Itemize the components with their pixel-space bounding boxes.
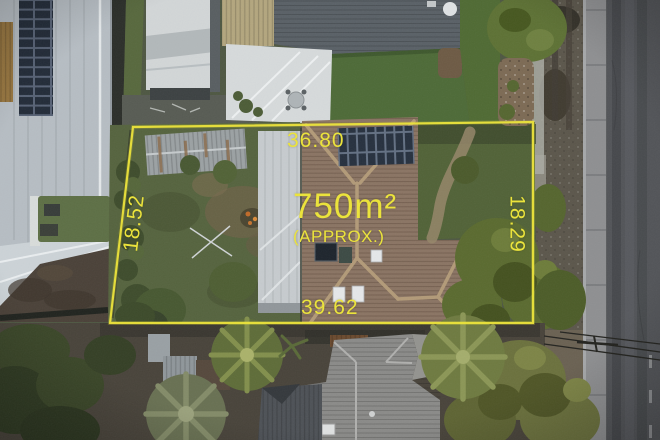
property-aerial-photo: 36.80 18.52 18.29 39.62 750m² (APPROX.) [0, 0, 660, 440]
boundary-length-top: 36.80 [287, 130, 345, 151]
land-area-qualifier: (APPROX.) [293, 228, 384, 245]
land-area-label: 750m² [293, 189, 397, 224]
boundary-length-right: 18.29 [507, 195, 528, 253]
boundary-length-bottom: 39.62 [301, 297, 359, 318]
